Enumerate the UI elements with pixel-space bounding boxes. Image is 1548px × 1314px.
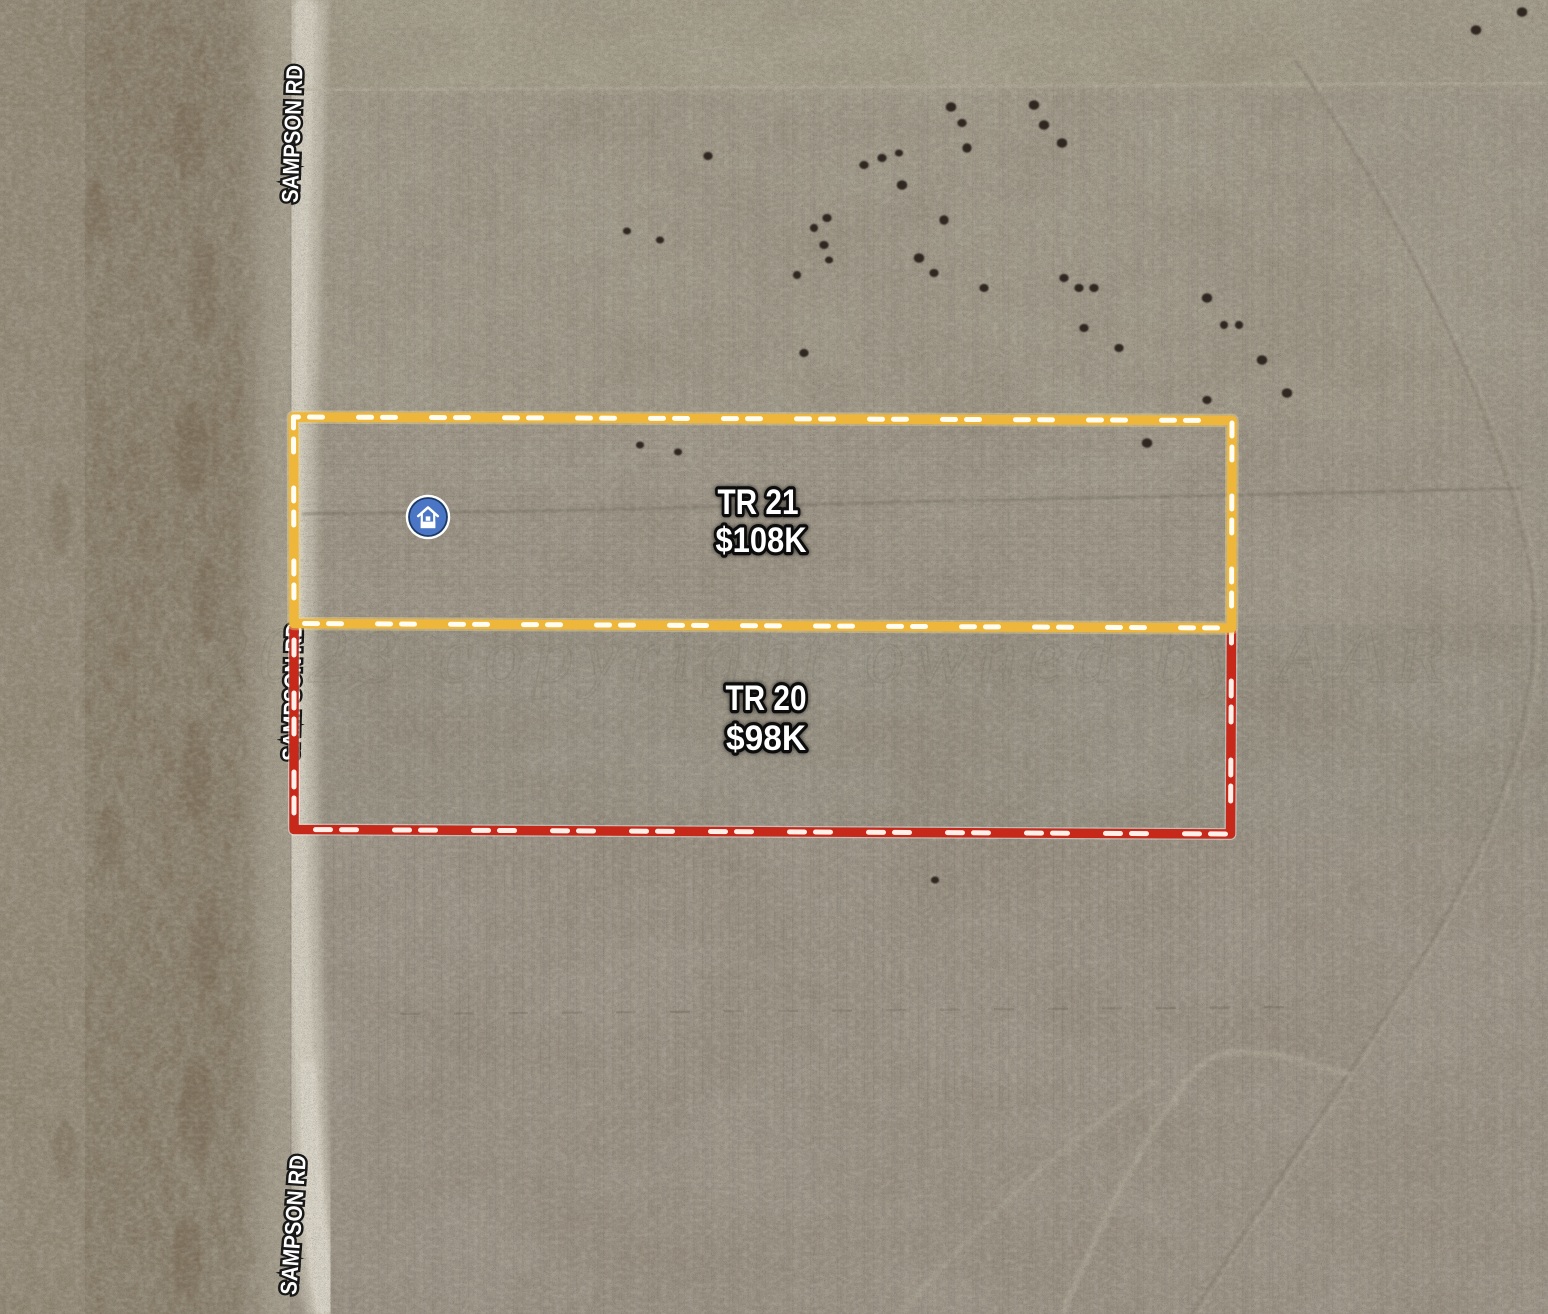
svg-text:TR 21: TR 21 bbox=[718, 482, 799, 522]
svg-text:$108K: $108K bbox=[716, 520, 807, 560]
svg-text:TR 20: TR 20 bbox=[726, 678, 807, 718]
svg-text:SAMPSON RD: SAMPSON RD bbox=[277, 65, 308, 204]
svg-text:$98K: $98K bbox=[726, 718, 806, 758]
